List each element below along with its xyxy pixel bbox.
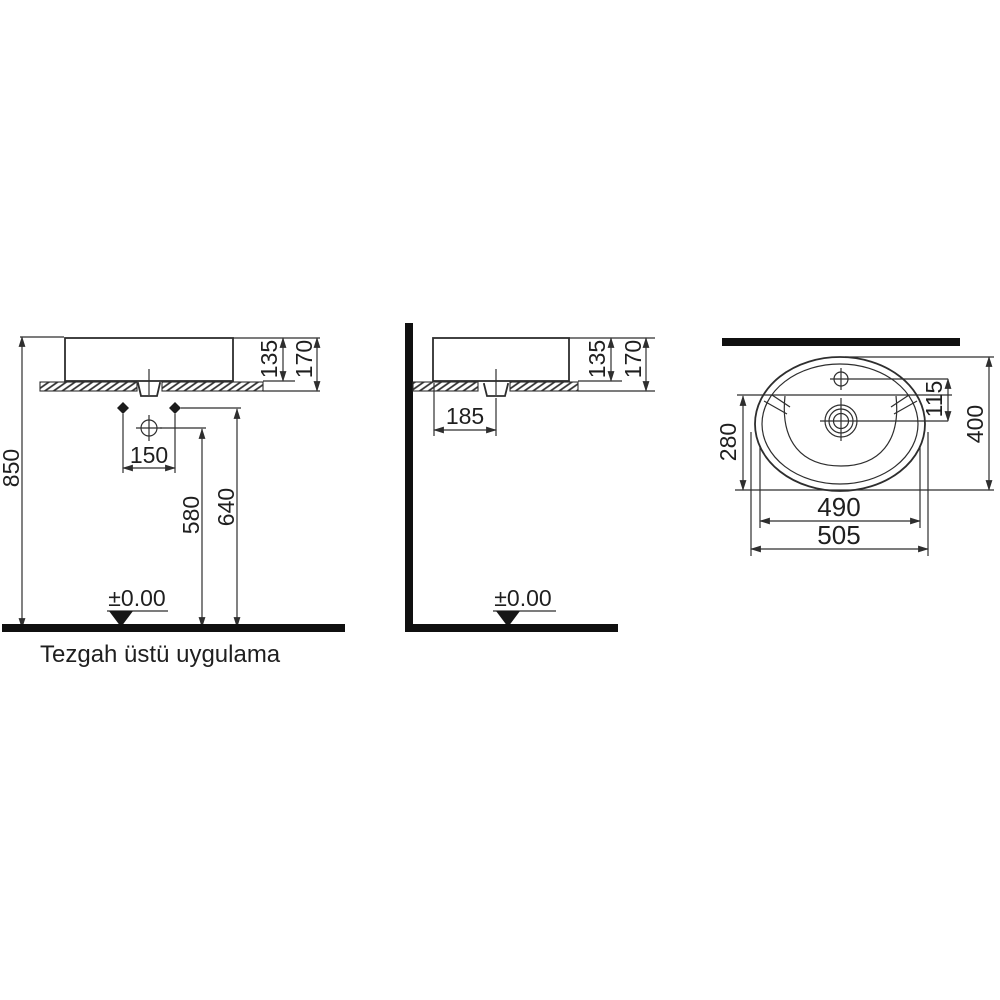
dim-850-label: 850: [0, 449, 24, 487]
dim-115-label: 115: [921, 381, 947, 418]
floor-side: [405, 624, 618, 632]
dim-135-side-label: 135: [584, 340, 610, 378]
drawing-page: 850 135 170 150 580 64: [0, 0, 1000, 1000]
datum-side-label: ±0.00: [494, 585, 551, 611]
datum-front-label: ±0.00: [108, 585, 165, 611]
dim-640-label: 640: [213, 488, 239, 526]
basin-side-outline: [433, 338, 569, 381]
dim-505-label: 505: [817, 520, 860, 550]
datum-front: ±0.00: [107, 585, 168, 627]
dim-height-total: 850: [0, 337, 64, 628]
dim-185-label: 185: [446, 403, 484, 429]
datum-side: ±0.00: [493, 585, 556, 627]
side-view: 135 170 185 ±0.00: [405, 323, 655, 632]
technical-drawing: 850 135 170 150 580 64: [0, 0, 1000, 1000]
dim-580-label: 580: [178, 496, 204, 534]
dim-total-depth: 400: [735, 357, 994, 490]
dim-bowl-depth: 280: [715, 396, 743, 490]
dim-basin-heights-side: 135 170: [569, 338, 655, 391]
top-view: 115 280 400 490 505: [715, 338, 994, 556]
wall-side: [405, 323, 413, 632]
dim-490-label: 490: [817, 492, 860, 522]
dim-135-front-label: 135: [256, 340, 282, 378]
countertop-front: [40, 382, 263, 391]
wall-top: [722, 338, 960, 346]
drain-side: [484, 369, 508, 396]
caption: Tezgah üstü uygulama: [40, 641, 281, 668]
dim-280-label: 280: [715, 423, 741, 461]
dim-170-front-label: 170: [291, 340, 317, 378]
dim-170-side-label: 170: [620, 340, 646, 378]
dim-400-label: 400: [962, 405, 988, 443]
floor-front: [2, 624, 345, 632]
front-view: 850 135 170 150 580 64: [0, 337, 345, 668]
dim-tap-to-drain: 115: [921, 379, 948, 421]
dim-150-label: 150: [130, 442, 168, 468]
mounting-holes-front: [117, 402, 181, 414]
drain-front: [138, 369, 160, 396]
faucet-hole-front: [136, 415, 162, 441]
basin-outer-rim: [755, 357, 925, 491]
dim-inner-width: 490: [760, 446, 920, 528]
